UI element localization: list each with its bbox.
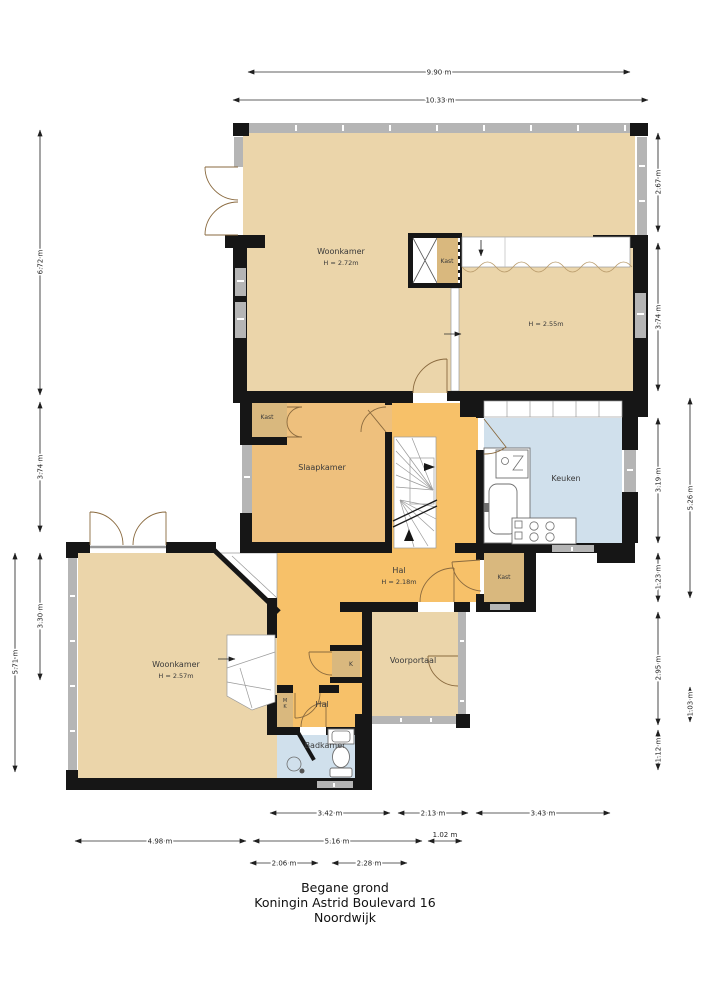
woonkamer-top-height: H = 2.72m <box>323 259 358 267</box>
dim-right-outer-1: 1.03 m <box>687 692 695 717</box>
dim-left-3: 5.71 m <box>12 650 20 675</box>
kast-shaft-label: Kast <box>441 258 455 265</box>
title-floor: Begane grond <box>301 880 389 895</box>
woonkamer-low-height: H = 2.57m <box>158 672 193 680</box>
dim-right-outer-0: 5.26 m <box>687 486 695 511</box>
toilet-tank <box>330 768 352 777</box>
hal-main-height: H = 2.18m <box>381 578 416 586</box>
wardrobe <box>462 237 630 267</box>
stove <box>512 518 576 544</box>
slaapkamer-label: Slaapkamer <box>298 463 346 472</box>
glass-wall-voorportaal <box>458 612 466 718</box>
dim-bottom2-0: 4.98 m <box>148 838 173 846</box>
dim-bottom2-1: 5.16 m <box>325 838 350 846</box>
dim-bottom2-2: 1.02 m <box>433 831 458 839</box>
dim-left-2: 3.30 m <box>37 604 45 629</box>
dim-bottom3-1: 2.28 m <box>357 860 382 868</box>
light-partition <box>451 288 459 391</box>
title-address: Koningin Astrid Boulevard 16 <box>254 895 435 910</box>
room-right-height: H = 2.55m <box>528 320 563 328</box>
glass-wall-woonkamer-low <box>68 558 77 772</box>
dim-left-0: 6.72 m <box>37 250 45 275</box>
dim-right-0: 2.67 m <box>655 170 663 195</box>
kast-slaapkamer-floor <box>252 403 287 439</box>
keuken-label: Keuken <box>551 474 580 483</box>
shower-drain <box>300 769 305 774</box>
dim-right-3: 1.23 m <box>655 565 663 590</box>
dim-right-1: 3.74 m <box>655 305 663 330</box>
title-block: Begane grond Koningin Astrid Boulevard 1… <box>254 880 435 925</box>
dim-bottom1-0: 3.42 m <box>318 810 343 818</box>
dim-right-5: 1.12 m <box>655 738 663 763</box>
kitchen-tap <box>484 503 489 512</box>
woonkamer-low-label: Woonkamer <box>152 660 200 669</box>
title-city: Noordwijk <box>314 910 377 925</box>
kitchen-appliance <box>496 450 528 478</box>
hal-main-label: Hal <box>392 566 405 575</box>
dim-bottom1-2: 3.43 m <box>531 810 556 818</box>
dim-bottom1-1: 2.13 m <box>421 810 446 818</box>
dim-right-2: 3.19 m <box>655 468 663 493</box>
kast-entry-label: Kast <box>498 574 512 581</box>
voorportaal-label: Voorportaal <box>390 656 436 665</box>
floorplan-page: Woonkamer H = 2.72m Kast H = 2.55m Kast … <box>0 0 707 1000</box>
dim-bottom3-0: 2.06 m <box>272 860 297 868</box>
dim-top-0: 9.90 m <box>427 69 452 77</box>
dim-right-4: 2.95 m <box>655 656 663 681</box>
kast-k-floor <box>332 651 360 677</box>
hal-small-label: Hal <box>315 700 328 709</box>
glass-wall-left-upper <box>234 137 243 167</box>
dim-left-1: 3.74 m <box>37 455 45 480</box>
kast-slaapkamer-label: Kast <box>261 414 275 421</box>
dim-top-1: 10.33 m <box>425 97 454 105</box>
floor-plan: Woonkamer H = 2.72m Kast H = 2.55m Kast … <box>0 0 707 1000</box>
woonkamer-top-label: Woonkamer <box>317 247 365 256</box>
glass-wall-right-upper <box>637 137 647 235</box>
badkamer-label: Badkamer <box>305 741 347 750</box>
glass-wall-top <box>249 123 630 133</box>
staircase <box>393 437 437 548</box>
